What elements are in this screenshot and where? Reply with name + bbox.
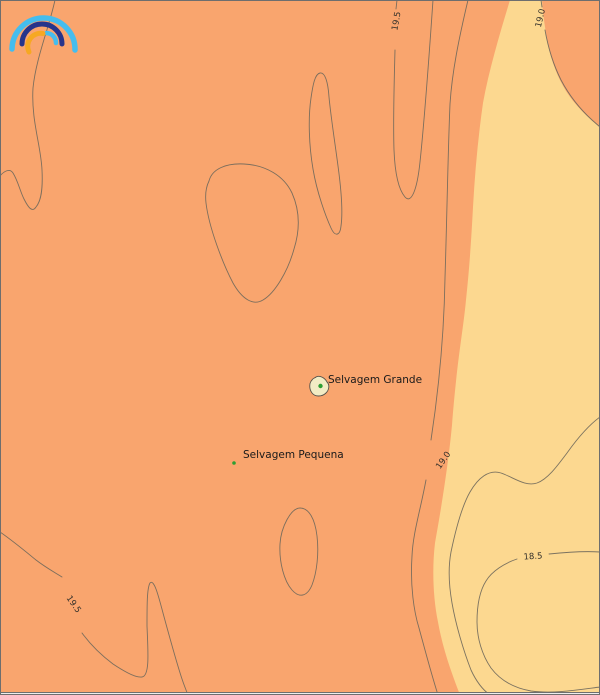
island-marker-selvagem-pequena <box>232 461 236 465</box>
contour-map-canvas: 19.5 19.0 19.0 18.5 19.5 Selvagem Grande… <box>0 0 600 695</box>
island-marker-selvagem-grande <box>318 384 322 388</box>
island-label-selvagem-grande: Selvagem Grande <box>328 374 422 386</box>
contour-label-18p5-bottomright: 18.5 <box>523 551 543 562</box>
contour-map: 19.5 19.0 19.0 18.5 19.5 Selvagem Grande… <box>0 0 600 695</box>
island-label-selvagem-pequena: Selvagem Pequena <box>243 449 344 461</box>
